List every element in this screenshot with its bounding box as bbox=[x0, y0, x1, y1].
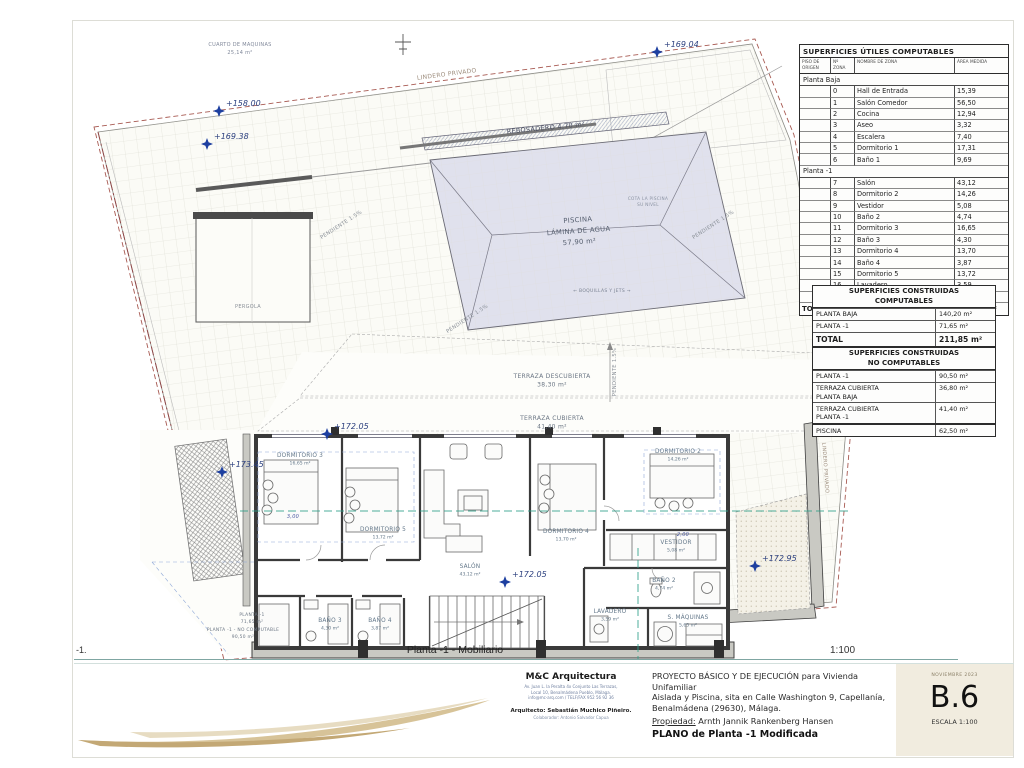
collaborator-line: Colaborador: Antonio Salvador Capua bbox=[498, 715, 644, 720]
room-label-bano-2: BAÑO 2 bbox=[652, 577, 676, 584]
room-label-dormitorio-4: DORMITORIO 4 bbox=[543, 529, 589, 535]
table-cell bbox=[800, 120, 830, 131]
total-label: TOTAL bbox=[813, 332, 935, 346]
room-label-salon: SALÓN bbox=[460, 563, 481, 570]
table-cell bbox=[800, 269, 830, 280]
table-grid: PISO DE ORIGENNº ZONANOMBRE DE ZONAÁREA … bbox=[800, 58, 1008, 315]
room-label-dormitorio-2: DORMITORIO 2 bbox=[655, 449, 701, 455]
room-name-cell: Dormitorio 5 bbox=[854, 269, 954, 280]
table-cell bbox=[800, 212, 830, 223]
room-name-cell: Vestidor bbox=[854, 201, 954, 212]
area-cell: 4,74 bbox=[954, 212, 1008, 223]
room-area-dormitorio-5: 13,72 m² bbox=[373, 535, 394, 541]
area-cell: 17,31 bbox=[954, 143, 1008, 154]
room-name-cell: Dormitorio 3 bbox=[854, 223, 954, 234]
room-area-s-maquinas: 5,65 m² bbox=[679, 623, 697, 629]
room-name-cell: Salón Comedor bbox=[854, 98, 954, 109]
footer-rule bbox=[74, 659, 958, 660]
area-cell: 5,08 bbox=[954, 201, 1008, 212]
sheet-number: B.6 bbox=[896, 680, 1013, 715]
stairs-interior bbox=[430, 596, 544, 648]
table-superficies-construidas-computables: SUPERFICIES CONSTRUIDASCOMPUTABLESPLANTA… bbox=[812, 285, 996, 347]
firm-name: M&C Arquitectura bbox=[498, 672, 644, 682]
table-cell bbox=[800, 109, 830, 120]
elevation-value: +169.38 bbox=[214, 132, 249, 141]
owner-name: Arnth Jannik Rankenberg Hansen bbox=[698, 716, 833, 726]
plan-label-dim-3-00: 3,00 bbox=[287, 514, 299, 520]
column-header: NOMBRE DE ZONA bbox=[854, 58, 954, 74]
plan-label-pergola: PERGOLA bbox=[235, 304, 261, 310]
table-cell bbox=[800, 189, 830, 200]
table-title-line: SUPERFICIES CONSTRUIDAS bbox=[813, 286, 995, 296]
room-name-cell: Baño 2 bbox=[854, 212, 954, 223]
elevation-value: +158.00 bbox=[226, 99, 261, 108]
project-description: Benalmádena (29630), Málaga. bbox=[652, 703, 894, 714]
owner-line: Propiedad: Arnth Jannik Rankenberg Hanse… bbox=[652, 716, 894, 726]
room-name-cell: Hall de Entrada bbox=[854, 86, 954, 97]
architect-line: Arquitecto: Sebastián Muchico Piñeiro. bbox=[498, 708, 644, 714]
row-value: 41,40 m² bbox=[935, 402, 995, 423]
area-cell: 13,72 bbox=[954, 269, 1008, 280]
project-block: PROYECTO BÁSICO Y DE EJECUCIÓN para Vivi… bbox=[652, 671, 894, 740]
firm-address-line: info@mc-arq.com / TELF/FAX 952 56 92 36 bbox=[498, 695, 644, 701]
elevation-value: +173.45 bbox=[229, 460, 264, 469]
table-cell bbox=[800, 201, 830, 212]
plan-label-pendiente-3: PENDIENTE 1.5% bbox=[612, 348, 618, 396]
room-area-lavadero: 3,59 m² bbox=[601, 617, 619, 623]
area-cell: 16,65 bbox=[954, 223, 1008, 234]
area-cell: 4,30 bbox=[954, 235, 1008, 246]
plan-scale: 1:100 bbox=[830, 645, 855, 656]
zone-cell: 9 bbox=[830, 201, 854, 212]
room-area-dormitorio-3: 16,65 m² bbox=[290, 461, 311, 467]
zone-cell: 14 bbox=[830, 257, 854, 268]
table-superficies-utiles: SUPERFICIES ÚTILES COMPUTABLESPISO DE OR… bbox=[799, 44, 1009, 316]
room-label-dormitorio-3: DORMITORIO 3 bbox=[277, 453, 323, 459]
room-area-salon: 43,12 m² bbox=[460, 572, 481, 578]
plan-label-dim-2-00: 2,00 bbox=[677, 532, 689, 538]
plan-label-cuarto-maquinas: CUARTO DE MAQUINAS25,14 m² bbox=[208, 42, 271, 56]
room-name-cell: Salón bbox=[854, 178, 954, 189]
project-description: Aislada y Piscina, sita en Calle Washing… bbox=[652, 692, 894, 703]
zone-cell: 12 bbox=[830, 235, 854, 246]
table-grid: PLANTA -190,50 m²TERRAZA CUBIERTA PLANTA… bbox=[813, 370, 995, 424]
sheet-scale: ESCALA 1:100 bbox=[896, 718, 1013, 726]
table-superficies-construidas-no-computables: SUPERFICIES CONSTRUIDASNO COMPUTABLESPLA… bbox=[812, 347, 996, 424]
zone-cell: 11 bbox=[830, 223, 854, 234]
elevation-value: +172.05 bbox=[334, 422, 369, 431]
area-cell: 3,87 bbox=[954, 257, 1008, 268]
elevation-value: +172.95 bbox=[762, 554, 797, 563]
table-grid: PISCINA62,50 m² bbox=[813, 425, 995, 436]
row-label: PLANTA -1 bbox=[813, 370, 935, 382]
zone-cell: 6 bbox=[830, 154, 854, 165]
row-label: PLANTA -1 bbox=[813, 320, 935, 332]
footer-rule-light bbox=[74, 663, 1014, 664]
room-name-cell: Dormitorio 1 bbox=[854, 143, 954, 154]
table-cell bbox=[800, 257, 830, 268]
area-cell: 9,69 bbox=[954, 154, 1008, 165]
total-value: 211,85 m² bbox=[935, 332, 995, 346]
zone-cell: 7 bbox=[830, 178, 854, 189]
zone-cell: 10 bbox=[830, 212, 854, 223]
area-cell: 14,26 bbox=[954, 189, 1008, 200]
column-header: ÁREA MEDIDA bbox=[954, 58, 1008, 74]
room-name-cell: Baño 4 bbox=[854, 257, 954, 268]
table-cell bbox=[800, 86, 830, 97]
section-row: Planta -1 bbox=[800, 166, 1008, 178]
room-area-dormitorio-4: 13,70 m² bbox=[556, 537, 577, 543]
area-cell: 15,39 bbox=[954, 86, 1008, 97]
zone-cell: 15 bbox=[830, 269, 854, 280]
zone-cell: 4 bbox=[830, 132, 854, 143]
title-block: M&C Arquitectura Av. Juan L. la Peralta … bbox=[0, 666, 1024, 762]
room-label-lavadero: LAVADERO bbox=[594, 609, 627, 615]
row-value: 140,20 m² bbox=[935, 308, 995, 320]
firm-block: M&C Arquitectura Av. Juan L. la Peralta … bbox=[498, 672, 644, 720]
owner-label: Propiedad: bbox=[652, 716, 696, 726]
elevation-value: +169.04 bbox=[664, 40, 699, 49]
area-cell: 3,32 bbox=[954, 120, 1008, 131]
plan-label-jets: ← BOQUILLAS Y JETS → bbox=[573, 288, 631, 294]
table-title: SUPERFICIES CONSTRUIDASNO COMPUTABLES bbox=[813, 348, 995, 370]
table-cell bbox=[800, 132, 830, 143]
room-name-cell: Cocina bbox=[854, 109, 954, 120]
sheet-date: NOVIEMBRE 2023 bbox=[896, 673, 1013, 678]
logo-swoosh bbox=[70, 682, 500, 752]
room-area-bano-4: 3,87 m² bbox=[371, 626, 389, 632]
room-name-cell: Baño 3 bbox=[854, 235, 954, 246]
area-cell: 12,94 bbox=[954, 109, 1008, 120]
room-name-cell: Dormitorio 4 bbox=[854, 246, 954, 257]
table-cell bbox=[800, 235, 830, 246]
column-header: Nº ZONA bbox=[830, 58, 854, 74]
column-header: PISO DE ORIGEN bbox=[800, 58, 830, 74]
table-cell bbox=[800, 223, 830, 234]
sheet-level-label: -1. bbox=[76, 645, 87, 655]
project-description: PROYECTO BÁSICO Y DE EJECUCIÓN para Vivi… bbox=[652, 671, 894, 692]
room-label-bano-3: BAÑO 3 bbox=[318, 617, 342, 624]
plan-name-line: PLANO de Planta -1 Modificada bbox=[652, 729, 894, 740]
table-piscina: PISCINA62,50 m² bbox=[812, 424, 996, 437]
area-cell: 13,70 bbox=[954, 246, 1008, 257]
room-name-cell: Dormitorio 2 bbox=[854, 189, 954, 200]
area-cell: 43,12 bbox=[954, 178, 1008, 189]
room-name-cell: Aseo bbox=[854, 120, 954, 131]
room-area-vestidor: 5,08 m² bbox=[667, 548, 685, 554]
room-label-dormitorio-5: DORMITORIO 5 bbox=[360, 527, 406, 533]
row-value: 36,80 m² bbox=[935, 382, 995, 403]
elevation-value: +172.05 bbox=[512, 570, 547, 579]
house bbox=[256, 427, 728, 648]
area-cell: 56,50 bbox=[954, 98, 1008, 109]
table-title: SUPERFICIES ÚTILES COMPUTABLES bbox=[800, 45, 1008, 58]
survey-cross-icon bbox=[395, 34, 411, 55]
table-title-line: SUPERFICIES CONSTRUIDAS bbox=[813, 348, 995, 358]
row-value: 90,50 m² bbox=[935, 370, 995, 382]
table-grid: PLANTA BAJA140,20 m²PLANTA -171,65 m²TOT… bbox=[813, 308, 995, 347]
drawing-sheet: CUARTO DE MAQUINAS25,14 m²LINDERO PRIVAD… bbox=[0, 0, 1024, 768]
table-cell bbox=[800, 178, 830, 189]
room-area-bano-3: 4,30 m² bbox=[321, 626, 339, 632]
table-cell bbox=[800, 154, 830, 165]
row-label: TERRAZA CUBIERTA PLANTA BAJA bbox=[813, 382, 935, 403]
row-label: PISCINA bbox=[813, 425, 935, 436]
zone-cell: 1 bbox=[830, 98, 854, 109]
zone-cell: 2 bbox=[830, 109, 854, 120]
plan-title: Planta -1 - Mobiliario bbox=[295, 644, 615, 656]
row-label: TERRAZA CUBIERTA PLANTA -1 bbox=[813, 402, 935, 423]
table-title: SUPERFICIES CONSTRUIDASCOMPUTABLES bbox=[813, 286, 995, 308]
table-cell bbox=[800, 246, 830, 257]
zone-cell: 0 bbox=[830, 86, 854, 97]
room-area-bano-2: 4,74 m² bbox=[655, 586, 673, 592]
room-label-vestidor: VESTIDOR bbox=[660, 540, 691, 546]
room-label-bano-4: BAÑO 4 bbox=[368, 617, 392, 624]
room-area-dormitorio-2: 14,26 m² bbox=[668, 457, 689, 463]
zone-cell: 5 bbox=[830, 143, 854, 154]
area-cell: 7,40 bbox=[954, 132, 1008, 143]
zone-cell: 8 bbox=[830, 189, 854, 200]
room-name-cell: Escalera bbox=[854, 132, 954, 143]
table-cell bbox=[800, 98, 830, 109]
firm-address: Av. Juan L. la Peralta 4x Conjunto Las T… bbox=[498, 684, 644, 701]
row-value: 71,65 m² bbox=[935, 320, 995, 332]
table-title-line: NO COMPUTABLES bbox=[813, 358, 995, 368]
section-row: Planta Baja bbox=[800, 74, 1008, 86]
row-value: 62,50 m² bbox=[935, 425, 995, 436]
zone-cell: 3 bbox=[830, 120, 854, 131]
zone-cell: 13 bbox=[830, 246, 854, 257]
table-title-line: COMPUTABLES bbox=[813, 296, 995, 306]
room-name-cell: Baño 1 bbox=[854, 154, 954, 165]
sheet-stamp: NOVIEMBRE 2023 B.6 ESCALA 1:100 bbox=[896, 664, 1013, 756]
room-label-s-maquinas: S. MÁQUINAS bbox=[668, 614, 709, 621]
row-label: PLANTA BAJA bbox=[813, 308, 935, 320]
table-cell bbox=[800, 143, 830, 154]
